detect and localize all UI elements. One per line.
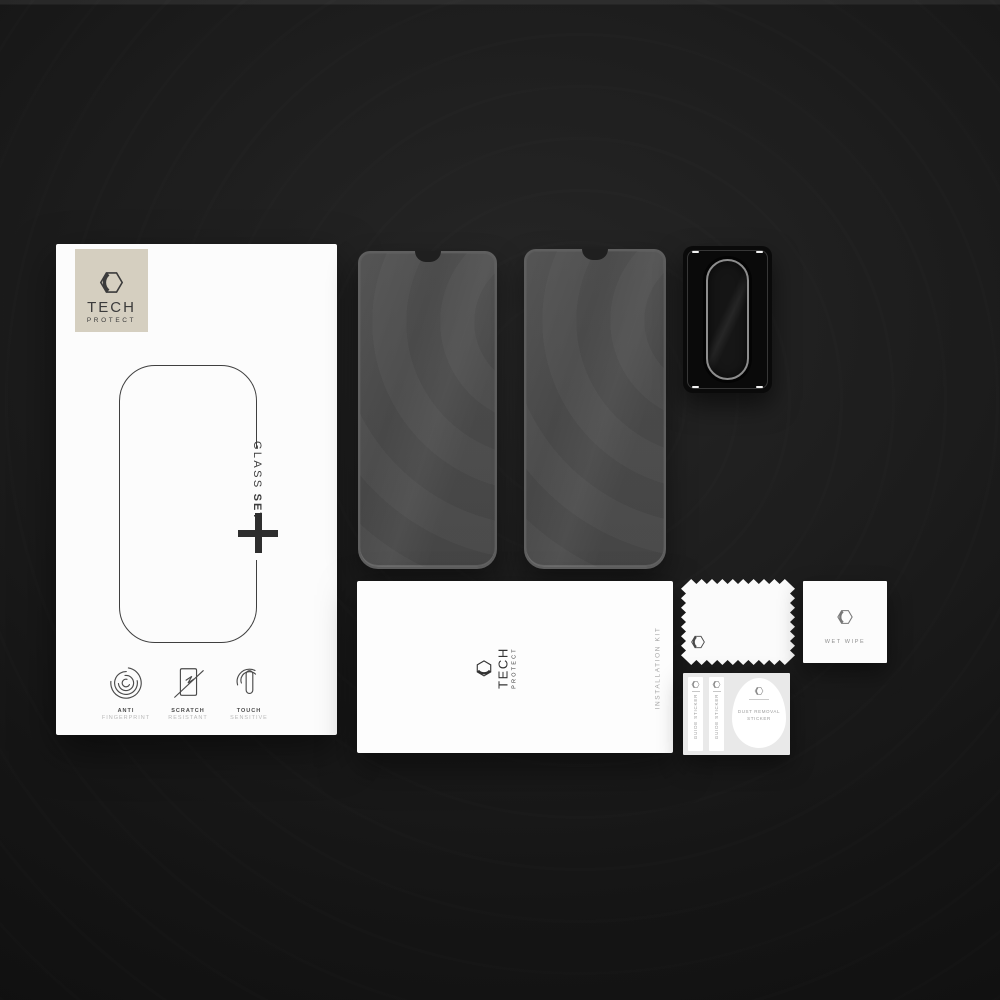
product-title: GLASSSET: [251, 441, 263, 521]
hexagon-logo-icon: [836, 608, 854, 626]
product-name: GLASS: [251, 441, 263, 490]
hexagon-logo-icon: [98, 269, 125, 296]
alignment-mark-icon: [692, 386, 699, 388]
kit-brand-logo: TECH PROTECT: [475, 647, 518, 689]
wet-wipe-sachet: WET WIPE: [803, 581, 887, 663]
divider: [749, 699, 769, 700]
plus-icon: [238, 513, 278, 553]
brand-subname: PROTECT: [87, 317, 136, 324]
divider: [713, 691, 721, 692]
brand-subname: PROTECT: [512, 647, 518, 689]
camera-cutout: [706, 259, 749, 380]
feature-scratch-resistant: SCRATCH RESISTANT: [157, 662, 219, 721]
sticker-card: GUIDE STICKER GUIDE STICKER DUST REMOVAL…: [683, 673, 790, 755]
feature-touch-sensitive: TOUCH SENSITIVE: [218, 662, 280, 721]
feature-subtitle: RESISTANT: [168, 715, 207, 721]
alignment-mark-icon: [756, 386, 763, 388]
retail-box: TECH PROTECT GLASSSET ANTI FINGERPRINT S…: [56, 244, 337, 735]
brand-name: TECH: [496, 647, 511, 689]
dust-sticker-label: DUST REMOVAL STICKER: [738, 708, 780, 722]
feature-subtitle: FINGERPRINT: [102, 715, 150, 721]
guide-sticker-1: GUIDE STICKER: [688, 677, 703, 751]
feature-anti-fingerprint: ANTI FINGERPRINT: [95, 662, 157, 721]
brand-name: TECH: [87, 299, 136, 316]
tempered-glass-protector-1: [358, 251, 497, 569]
guide-sticker-label: GUIDE STICKER: [693, 694, 698, 739]
tempered-glass-protector-2: [524, 249, 666, 569]
scratch-icon: [169, 662, 207, 704]
dust-removal-sticker: DUST REMOVAL STICKER: [732, 678, 786, 748]
guide-sticker-label: GUIDE STICKER: [714, 694, 719, 739]
hexagon-logo-icon: [690, 634, 706, 650]
alignment-mark-icon: [756, 251, 763, 253]
microfiber-cloth: [681, 579, 795, 665]
hexagon-logo-icon: [475, 659, 494, 678]
camera-lens-protector: [683, 246, 772, 393]
hexagon-logo-icon: [691, 680, 700, 689]
wet-wipe-label: WET WIPE: [825, 639, 866, 645]
product-photo-scene: TECH PROTECT GLASSSET ANTI FINGERPRINT S…: [0, 0, 1000, 1000]
touch-icon: [230, 662, 268, 704]
phone-outline: [119, 365, 257, 643]
feature-title: ANTI: [118, 708, 135, 714]
brand-logo-square: TECH PROTECT: [75, 249, 148, 332]
hexagon-logo-icon: [712, 680, 721, 689]
installation-kit-box: TECH PROTECT INSTALLATION KIT: [357, 581, 673, 753]
divider: [692, 691, 700, 692]
fingerprint-icon: [107, 662, 145, 704]
hexagon-logo-icon: [754, 686, 764, 696]
feature-subtitle: SENSITIVE: [230, 715, 268, 721]
feature-title: SCRATCH: [171, 708, 204, 714]
guide-sticker-2: GUIDE STICKER: [709, 677, 724, 751]
alignment-mark-icon: [692, 251, 699, 253]
installation-kit-label: INSTALLATION KIT: [655, 627, 662, 710]
feature-title: TOUCH: [237, 708, 261, 714]
